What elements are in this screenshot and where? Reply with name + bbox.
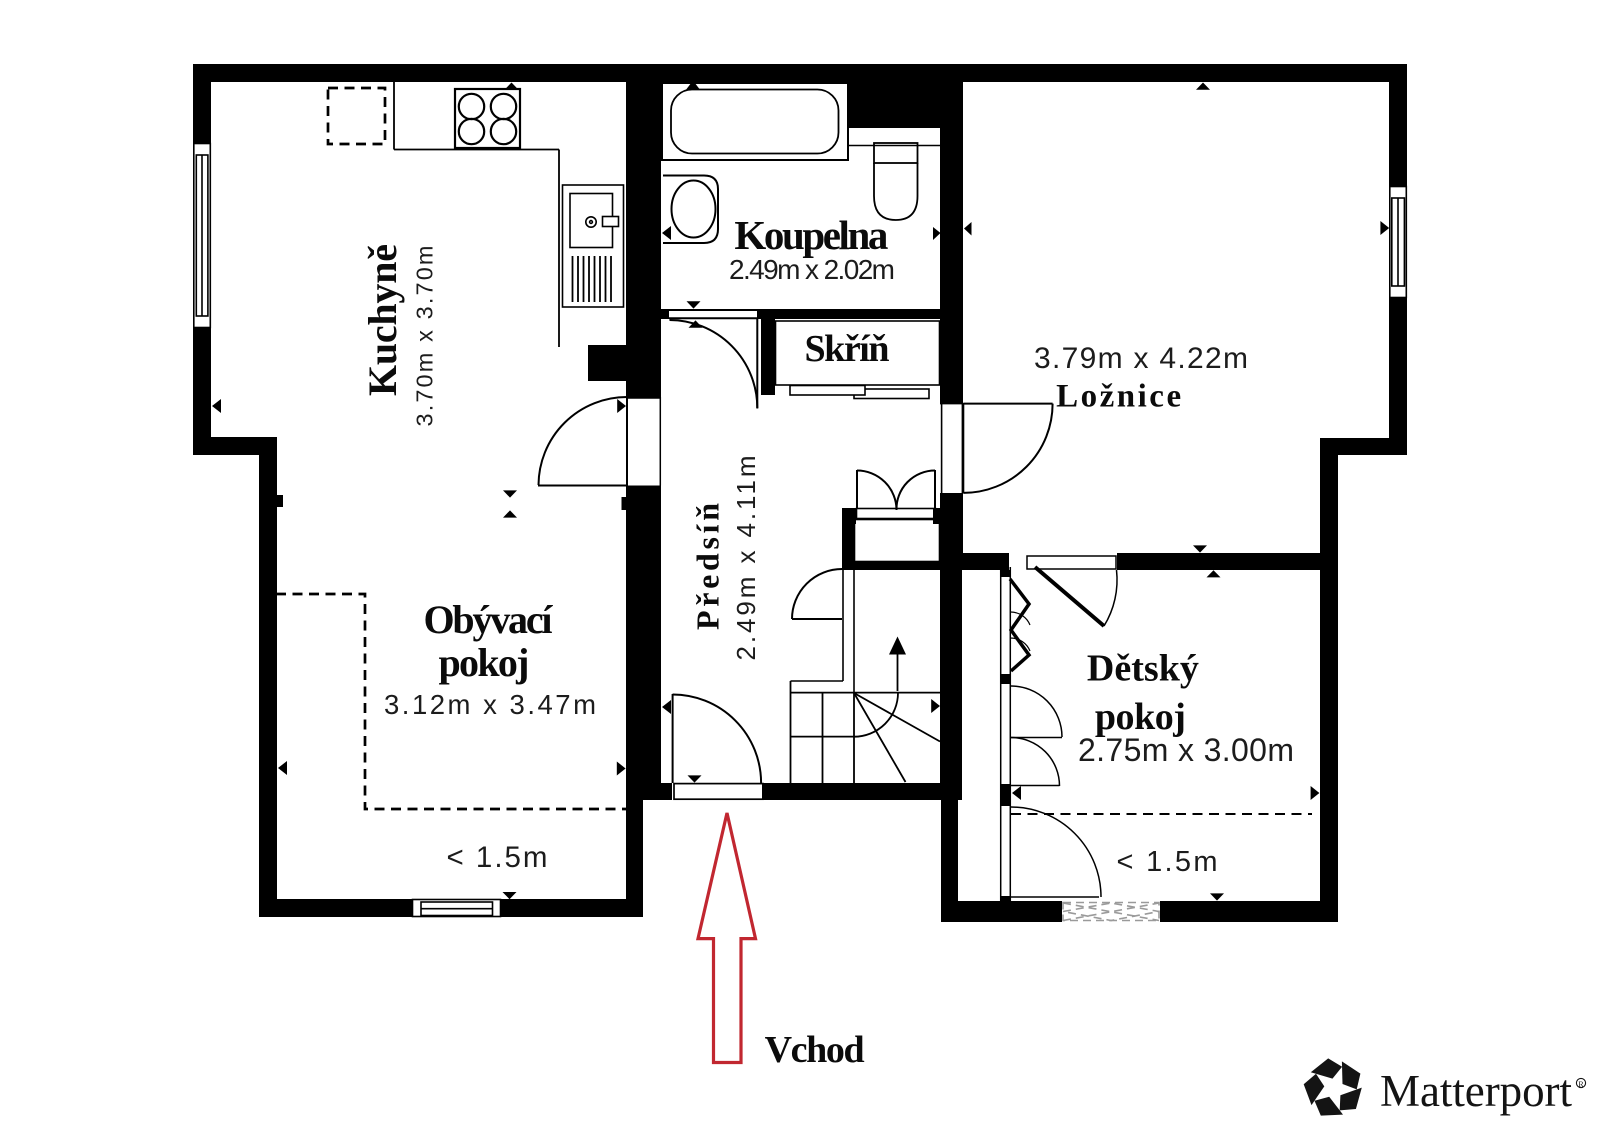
svg-text:Vchod: Vchod: [765, 1029, 865, 1071]
svg-text:< 1.5m: < 1.5m: [447, 841, 548, 874]
svg-text:< 1.5m: < 1.5m: [1117, 846, 1218, 878]
svg-text:Ložnice: Ložnice: [1056, 379, 1181, 415]
svg-text:Skříň: Skříň: [805, 328, 890, 370]
svg-text:Dětský: Dětský: [1087, 648, 1199, 690]
svg-text:R: R: [1578, 1080, 1584, 1089]
svg-text:pokoj: pokoj: [439, 640, 530, 685]
svg-text:2.49m x 2.02m: 2.49m x 2.02m: [729, 254, 895, 285]
svg-text:2.49m x 4.11m: 2.49m x 4.11m: [731, 456, 761, 661]
svg-text:3.70m x 3.70m: 3.70m x 3.70m: [412, 246, 438, 427]
svg-text:2.75m x 3.00m: 2.75m x 3.00m: [1078, 732, 1294, 768]
svg-text:Kuchyně: Kuchyně: [360, 244, 405, 396]
svg-text:Obývací: Obývací: [424, 597, 554, 642]
svg-text:3.79m x 4.22m: 3.79m x 4.22m: [1034, 342, 1248, 375]
svg-text:Koupelna: Koupelna: [734, 212, 888, 258]
svg-text:3.12m x 3.47m: 3.12m x 3.47m: [384, 689, 596, 720]
svg-text:Matterport: Matterport: [1380, 1066, 1572, 1116]
